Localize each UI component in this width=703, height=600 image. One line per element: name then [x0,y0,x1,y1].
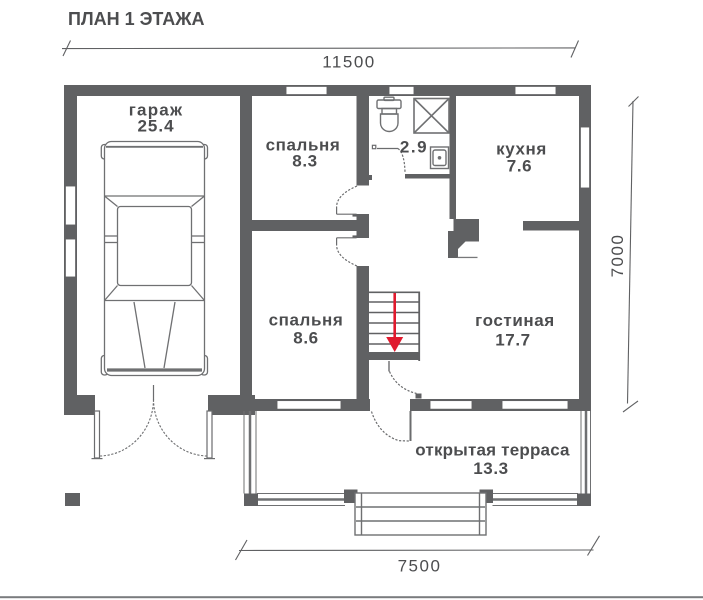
svg-text:17.7: 17.7 [495,331,531,350]
svg-text:7000: 7000 [608,234,627,278]
svg-text:7.6: 7.6 [507,157,532,176]
svg-text:7500: 7500 [398,556,442,575]
svg-text:открытая терраса: открытая терраса [415,441,570,460]
svg-text:13.3: 13.3 [473,459,509,478]
svg-text:8.6: 8.6 [293,329,318,348]
svg-text:11500: 11500 [322,53,376,72]
svg-text:ПЛАН 1 ЭТАЖА: ПЛАН 1 ЭТАЖА [68,9,205,29]
svg-text:25.4: 25.4 [137,117,174,136]
svg-text:гостиная: гостиная [475,311,555,330]
svg-text:8.3: 8.3 [292,152,317,171]
svg-text:спальня: спальня [269,311,344,330]
svg-text:2.9: 2.9 [400,138,428,157]
